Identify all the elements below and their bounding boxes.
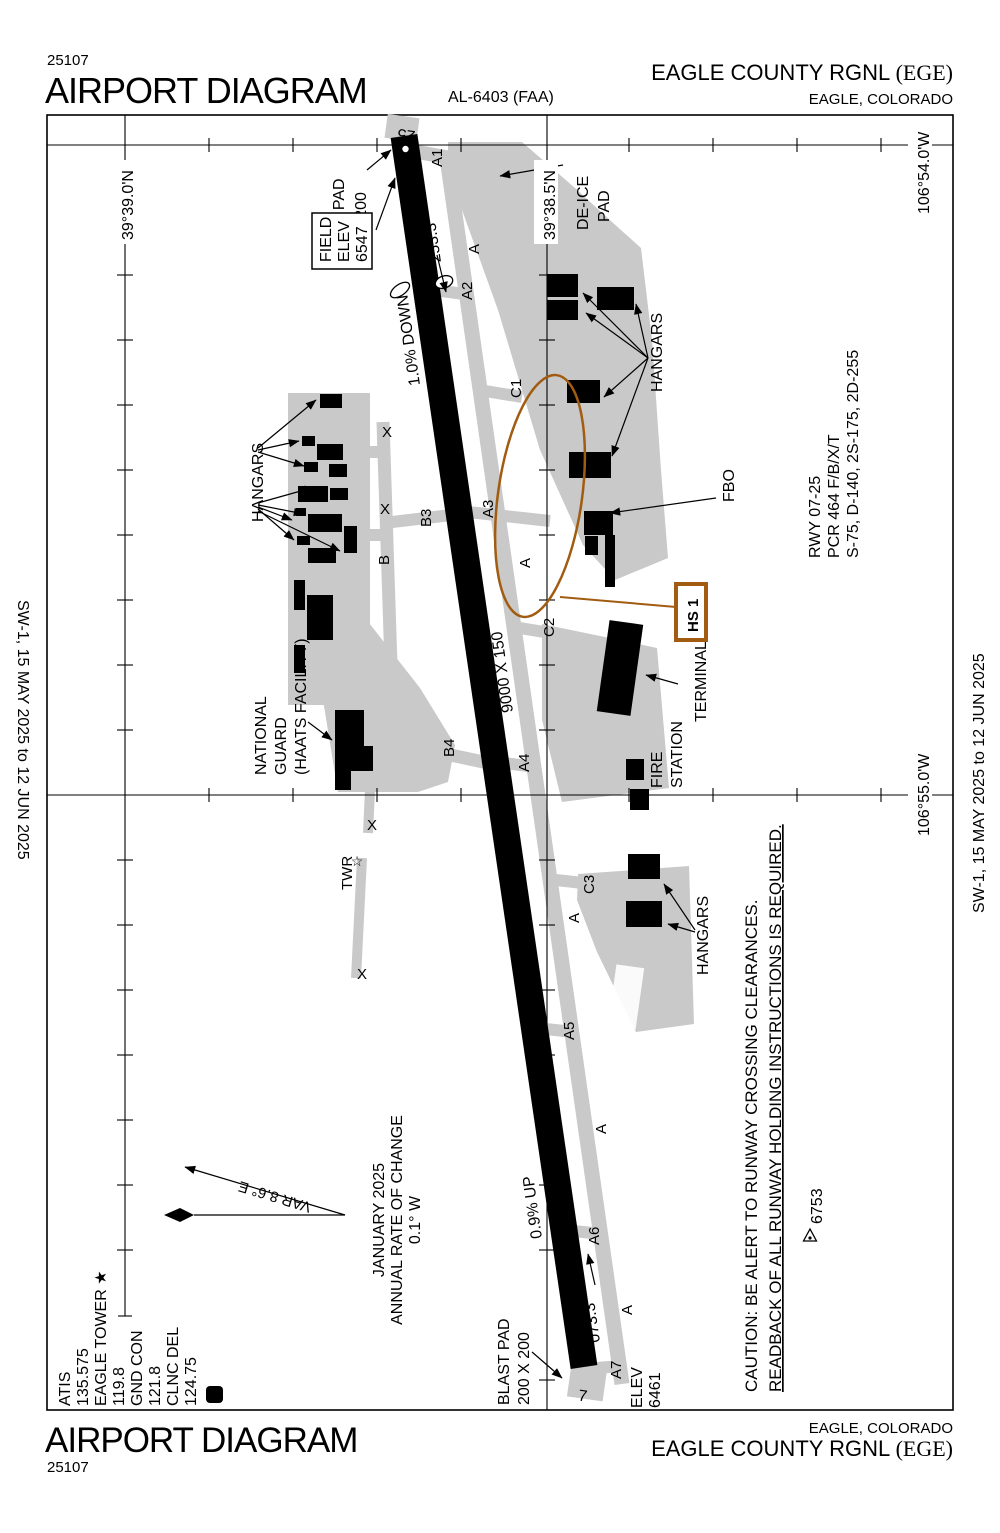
lat-label-mid: 39°38.5'N xyxy=(542,170,559,240)
comm-frequencies: ATIS 135.575 EAGLE TOWER ★ 119.8 GND CON… xyxy=(57,1270,223,1406)
clnc-freq: 124.75 xyxy=(183,1357,200,1406)
label-a-5: A xyxy=(619,1305,636,1315)
field-elev-l1: FIELD xyxy=(318,217,335,262)
runway-7-number: 7 xyxy=(577,1388,588,1406)
runway-25-threshold-dot xyxy=(402,146,408,152)
rwy-info-line3: S-75, D-140, 2S-175, 2D-255 xyxy=(845,350,862,558)
airport-name-text-bottom: EAGLE COUNTY RGNL xyxy=(651,1436,889,1461)
deice-label-2: PAD xyxy=(596,190,613,222)
label-c2: C2 xyxy=(541,618,558,637)
hotspot-leader xyxy=(560,597,676,607)
taxiway-b xyxy=(383,422,391,665)
national-guard-label-2: GUARD xyxy=(273,717,290,775)
fire-station-building-1 xyxy=(626,759,644,780)
runway-25-number: 25 xyxy=(396,125,416,144)
rwy-info-line1: RWY 07-25 xyxy=(807,476,824,558)
field-elev-l2: ELEV xyxy=(336,221,353,262)
label-a7: A7 xyxy=(608,1361,625,1379)
tower-freq: 119.8 xyxy=(111,1367,128,1406)
caution-line1: CAUTION: BE ALERT TO RUNWAY CROSSING CLE… xyxy=(742,900,761,1393)
var-rate-label: ANNUAL RATE OF CHANGE xyxy=(389,1115,406,1325)
rwy-info-line2: PCR 464 F/B/X/T xyxy=(826,434,843,558)
var-date: JANUARY 2025 xyxy=(371,1163,388,1277)
obstruction-elev: 6753 xyxy=(809,1188,826,1224)
label-a-1: A xyxy=(466,244,483,254)
gnd-freq: 121.8 xyxy=(147,1366,164,1406)
variation-arrows: VAR 8.6° E xyxy=(164,1167,345,1222)
airport-diagram-page: 25107 AIRPORT DIAGRAM AL-6403 (FAA) EAGL… xyxy=(0,0,1000,1533)
chart-number-bottom: 25107 xyxy=(47,1459,89,1476)
caution-line2: READBACK OF ALL RUNWAY HOLDING INSTRUCTI… xyxy=(766,824,785,1392)
blast-pad-label-south-1: BLAST PAD xyxy=(496,1318,513,1405)
closed-x-1: X xyxy=(382,424,392,441)
label-a4: A4 xyxy=(516,754,533,772)
national-guard-label-3: (HAATS FACILITY) xyxy=(293,638,310,775)
label-c1: C1 xyxy=(508,379,525,398)
lat-label-top: 39°39.0'N xyxy=(120,170,137,240)
label-a5: A5 xyxy=(561,1022,578,1040)
label-a6: A6 xyxy=(586,1227,603,1245)
field-elev-l3: 6547 xyxy=(354,226,371,262)
hangars-label-east: HANGARS xyxy=(649,313,666,392)
label-b4: B4 xyxy=(441,739,458,757)
lon-label-top: 106°54.0'W xyxy=(916,131,933,214)
label-c3: C3 xyxy=(581,875,598,894)
hangars-label-south: HANGARS xyxy=(695,896,712,975)
label-a3: A3 xyxy=(480,500,497,518)
hangars-label-west: HANGARS xyxy=(250,443,267,522)
national-guard-label-1: NATIONAL xyxy=(253,696,270,775)
atis-freq: 135.575 xyxy=(75,1348,92,1406)
fire-station-label-1: FIRE xyxy=(649,752,666,788)
airport-city-bottom: EAGLE, COLORADO xyxy=(809,1420,953,1437)
label-a-3: A xyxy=(566,913,583,923)
closed-x-4: X xyxy=(357,966,367,983)
clnc-label: CLNC DEL xyxy=(165,1327,182,1406)
closed-x-3: X xyxy=(367,817,377,834)
label-a-4: A xyxy=(593,1124,610,1134)
label-b3: B3 xyxy=(418,509,435,527)
deice-label-1: DE-ICE xyxy=(575,176,592,230)
atis-label: ATIS xyxy=(57,1372,74,1406)
airport-name-bottom: EAGLE COUNTY RGNL (EGE) xyxy=(651,1436,953,1462)
page-title-bottom: AIRPORT DIAGRAM xyxy=(45,1421,357,1461)
var-label: VAR 8.6° E xyxy=(237,1177,314,1215)
fbo-building xyxy=(584,511,613,535)
twr-label: TWR xyxy=(339,856,356,890)
terminal-label: TERMINAL xyxy=(693,641,710,722)
label-a2: A2 xyxy=(459,282,476,300)
true-north-diamond xyxy=(164,1208,194,1222)
obstruction-dot xyxy=(808,1236,811,1239)
blast-pad-label-south-2: 200 X 200 xyxy=(516,1332,533,1405)
gnd-label: GND CON xyxy=(129,1330,146,1406)
runway-7-elev-label: ELEV xyxy=(629,1367,646,1408)
runway-7-elev-value: 6461 xyxy=(647,1372,664,1408)
label-a-2: A xyxy=(517,558,534,568)
label-b: B xyxy=(376,555,393,565)
twr-stub xyxy=(356,858,362,978)
airport-icao-bottom: (EGE) xyxy=(896,1436,953,1461)
diagram-canvas: 39°39.0'N 39°38.5'N 106°54.0'W 106°55.0'… xyxy=(0,0,1000,1533)
label-a1: A1 xyxy=(429,149,446,167)
closed-x-2: X xyxy=(380,501,390,518)
hotspot-label: HS 1 xyxy=(685,599,702,632)
datis-letter: D xyxy=(207,1390,222,1399)
tower-label: EAGLE TOWER ★ xyxy=(93,1270,110,1406)
fire-station-label-2: STATION xyxy=(669,721,686,788)
fire-station-building-2 xyxy=(630,789,649,810)
var-rate-value: 0.1° W xyxy=(407,1195,424,1244)
lon-label-bottom: 106°55.0'W xyxy=(916,753,933,836)
fbo-label: FBO xyxy=(721,469,738,502)
